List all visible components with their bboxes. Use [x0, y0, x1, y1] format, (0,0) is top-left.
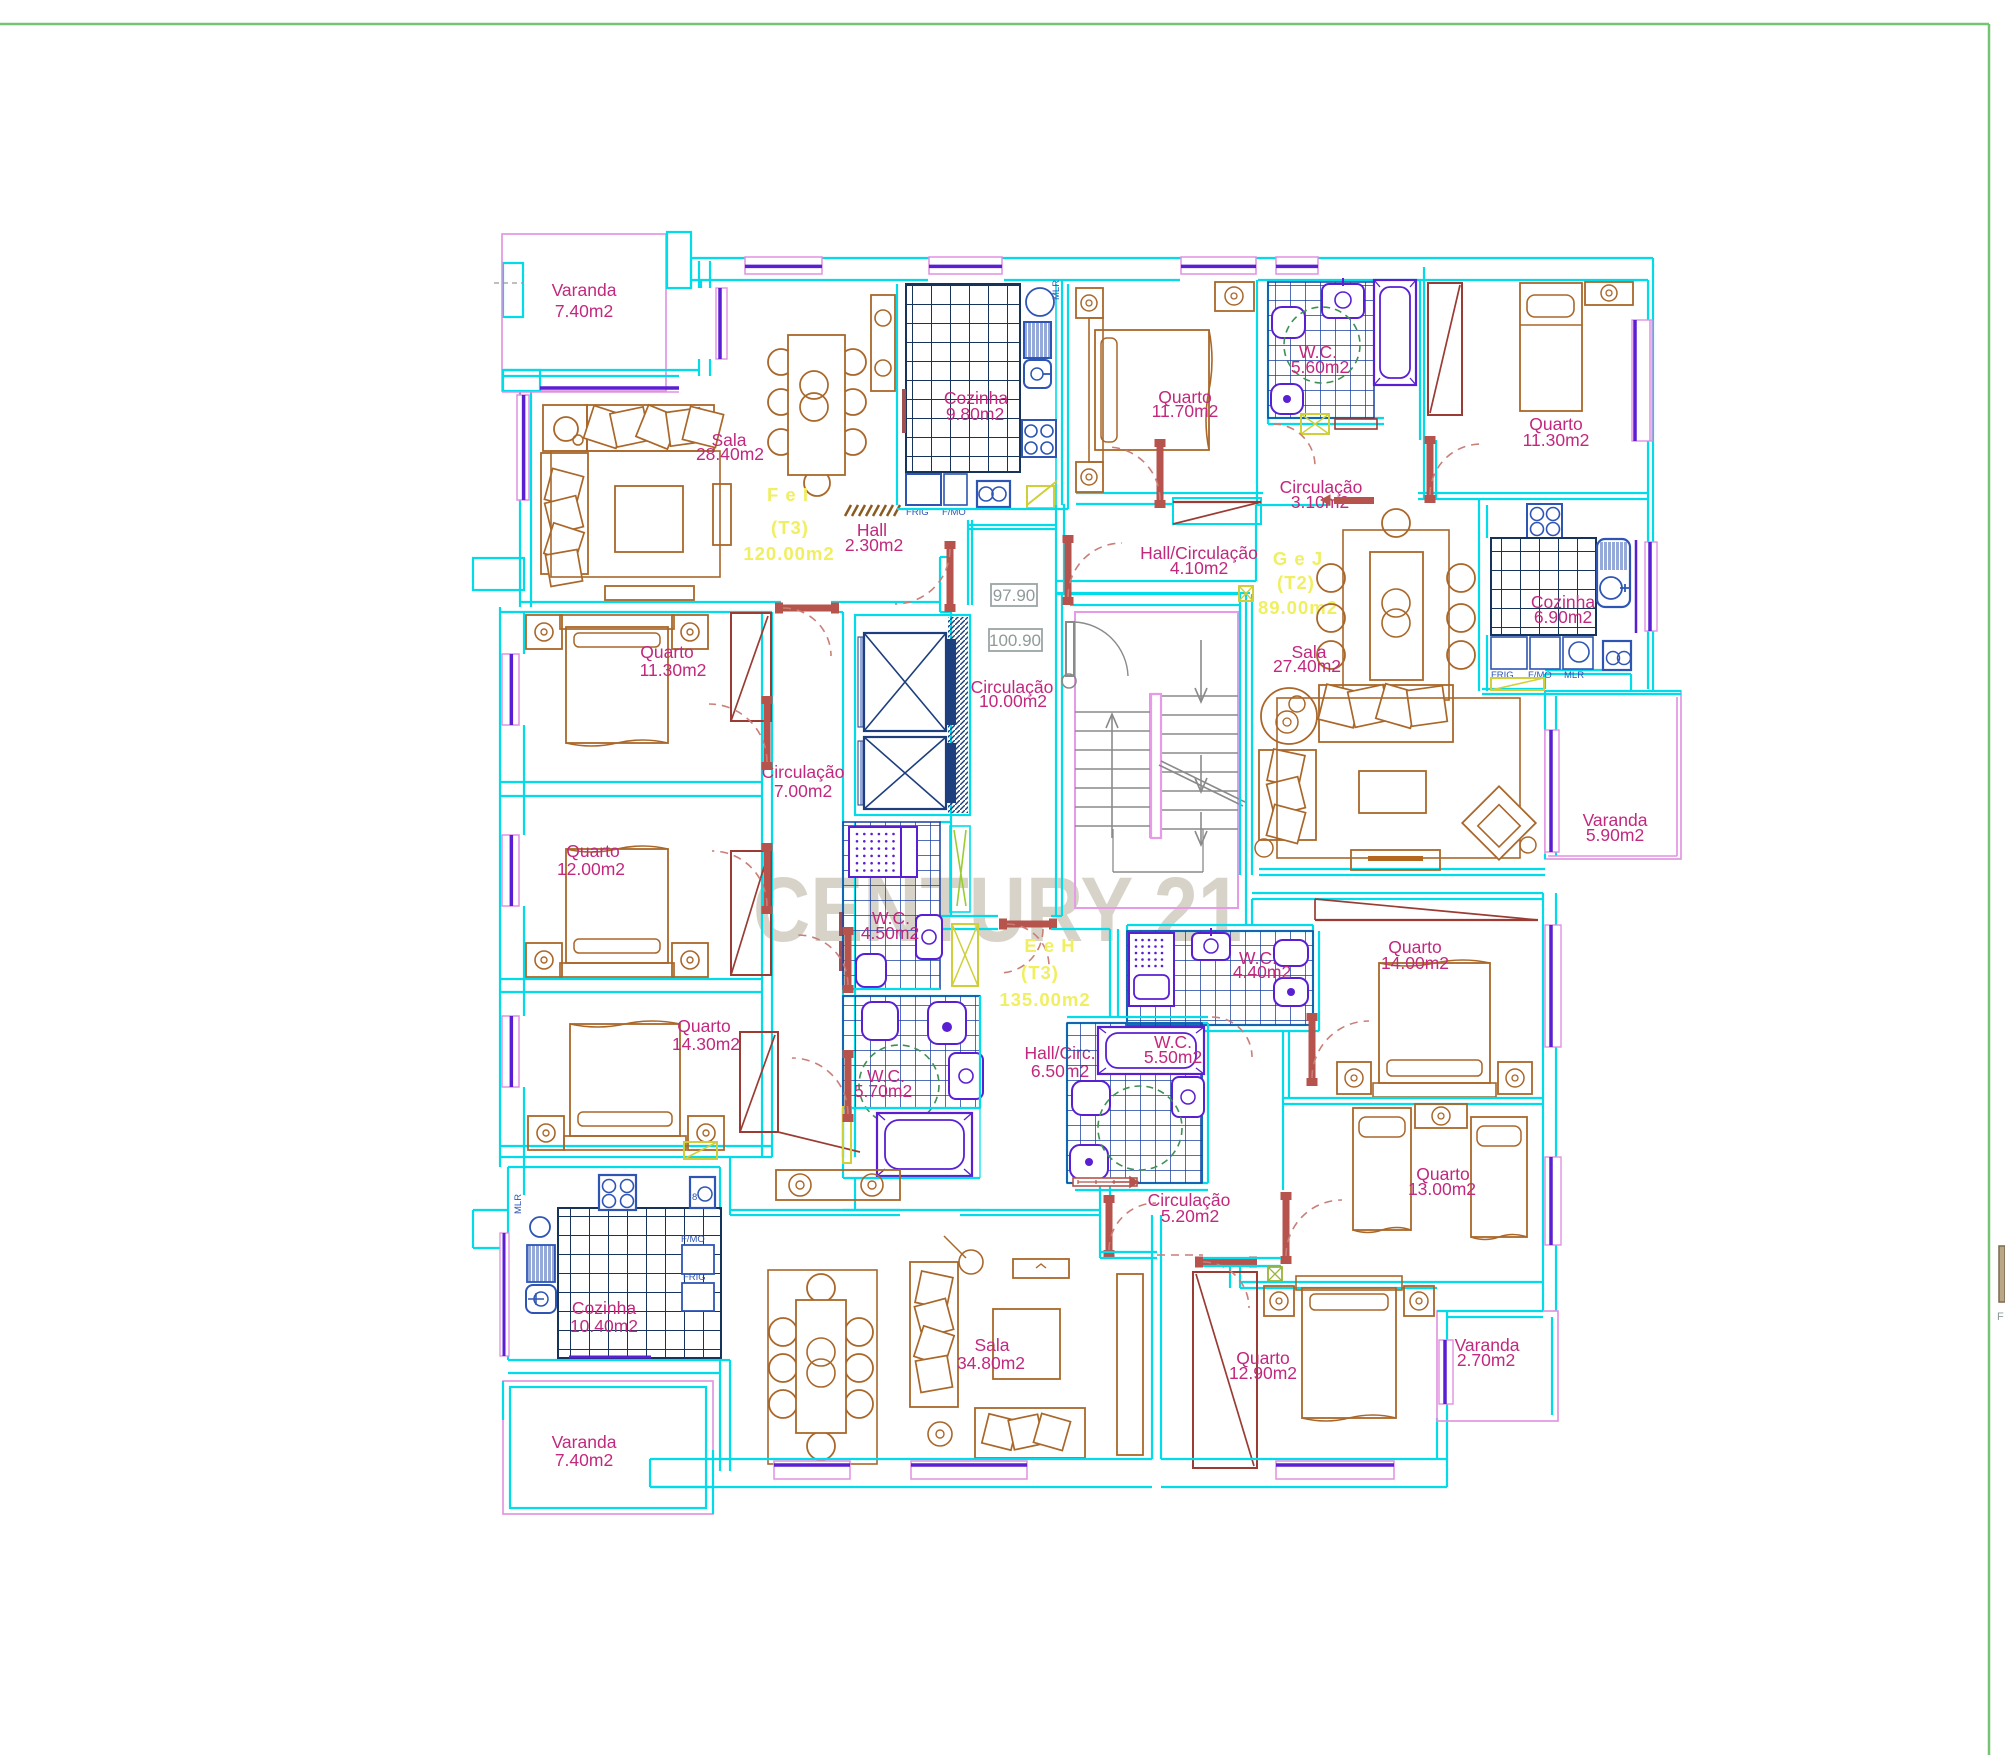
svg-text:Varanda: Varanda	[552, 280, 617, 300]
svg-text:8: 8	[692, 1192, 697, 1203]
svg-text:14.00m2: 14.00m2	[1381, 953, 1449, 973]
svg-text:100.90: 100.90	[989, 631, 1041, 650]
svg-text:Quarto: Quarto	[677, 1016, 731, 1036]
svg-text:(T3): (T3)	[1021, 962, 1059, 983]
svg-text:11.30m2: 11.30m2	[640, 660, 707, 680]
svg-text:34.80m2: 34.80m2	[957, 1353, 1025, 1373]
svg-text:F e I: F e I	[767, 484, 809, 505]
svg-text:5.70m2: 5.70m2	[854, 1081, 912, 1101]
svg-text:Sala: Sala	[974, 1335, 1009, 1355]
svg-text:14.30m2: 14.30m2	[672, 1034, 740, 1054]
svg-text:MLR: MLR	[513, 1194, 524, 1214]
svg-text:FRIG: FRIG	[1491, 670, 1514, 681]
svg-text:7.00m2: 7.00m2	[774, 781, 832, 801]
svg-text:12.00m2: 12.00m2	[557, 859, 625, 879]
svg-text:5.90m2: 5.90m2	[1586, 825, 1644, 845]
svg-text:2.30m2: 2.30m2	[845, 535, 903, 555]
svg-text:135.00m2: 135.00m2	[999, 989, 1090, 1010]
svg-text:11.30m2: 11.30m2	[1523, 430, 1590, 450]
svg-text:13.00m2: 13.00m2	[1408, 1179, 1476, 1199]
svg-text:E e H: E e H	[1024, 935, 1075, 956]
svg-text:7.40m2: 7.40m2	[555, 1450, 613, 1470]
svg-text:F: F	[1997, 1311, 2004, 1323]
svg-text:7.40m2: 7.40m2	[555, 301, 613, 321]
svg-text:5.50m2: 5.50m2	[1144, 1047, 1202, 1067]
svg-text:12.90m2: 12.90m2	[1229, 1363, 1297, 1383]
svg-text:(T3): (T3)	[771, 517, 809, 538]
svg-text:10.40m2: 10.40m2	[570, 1316, 638, 1336]
svg-text:120.00m2: 120.00m2	[743, 543, 834, 564]
svg-text:9.80m2: 9.80m2	[946, 404, 1004, 424]
svg-text:10.00m2: 10.00m2	[979, 691, 1047, 711]
svg-text:FRIG: FRIG	[683, 1272, 706, 1283]
svg-text:Circulação: Circulação	[762, 762, 845, 782]
svg-text:5.60m2: 5.60m2	[1291, 357, 1349, 377]
svg-text:28.40m2: 28.40m2	[696, 444, 764, 464]
svg-text:Cozinha: Cozinha	[572, 1298, 636, 1318]
svg-text:4.10m2: 4.10m2	[1170, 558, 1228, 578]
svg-text:MLR: MLR	[1051, 280, 1062, 300]
svg-text:G e J: G e J	[1273, 548, 1323, 569]
svg-text:2.70m2: 2.70m2	[1457, 1350, 1515, 1370]
svg-text:Quarto: Quarto	[566, 841, 620, 861]
svg-text:(T2): (T2)	[1277, 572, 1315, 593]
svg-text:MLR: MLR	[1564, 670, 1584, 681]
svg-text:Quarto: Quarto	[640, 642, 694, 662]
svg-text:4.40m2: 4.40m2	[1233, 962, 1291, 982]
svg-text:27.40m2: 27.40m2	[1273, 656, 1341, 676]
svg-text:6.90m2: 6.90m2	[1534, 607, 1592, 627]
svg-text:5.20m2: 5.20m2	[1161, 1206, 1219, 1226]
svg-text:Varanda: Varanda	[552, 1432, 617, 1452]
svg-text:97.90: 97.90	[993, 586, 1036, 605]
svg-text:11.70m2: 11.70m2	[1152, 401, 1219, 421]
svg-text:4.50m2: 4.50m2	[861, 923, 919, 943]
svg-text:89.00m2: 89.00m2	[1258, 597, 1338, 618]
svg-text:F/MO: F/MO	[681, 1234, 705, 1245]
